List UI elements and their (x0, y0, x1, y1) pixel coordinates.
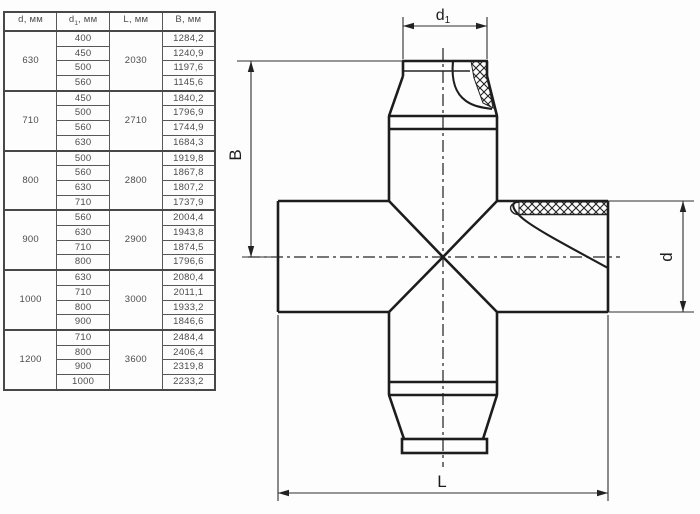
d-extension-lines (608, 201, 694, 312)
center-lines (248, 48, 620, 467)
d-top-arrowhead (680, 201, 686, 212)
b-top-arrowhead (248, 61, 254, 72)
label-d1: d1 (436, 7, 451, 26)
label-d1-base: d (436, 7, 445, 24)
side-branch-wall-hatch (519, 202, 608, 215)
b-bottom-arrowhead (248, 246, 254, 257)
cross-fitting-drawing: d1 B d L (0, 0, 700, 514)
l-left-arrowhead (278, 490, 289, 496)
d-bottom-arrowhead (680, 301, 686, 312)
l-right-arrowhead (597, 490, 608, 496)
dimension-d: d (608, 201, 694, 312)
technical-sheet: d, мм d1, мм L, мм B, мм 63040020301284,… (0, 0, 700, 514)
label-b: B (226, 149, 245, 160)
bottom-collar (402, 439, 487, 453)
label-d1-subscript: 1 (445, 15, 451, 26)
d1-left-arrowhead (403, 23, 414, 29)
dimension-d1: d1 (403, 7, 487, 59)
label-d: d (657, 252, 676, 261)
d1-right-arrowhead (476, 23, 487, 29)
label-l: L (437, 472, 446, 491)
dimension-b: B (226, 61, 403, 257)
cutaway-sections (453, 61, 608, 268)
